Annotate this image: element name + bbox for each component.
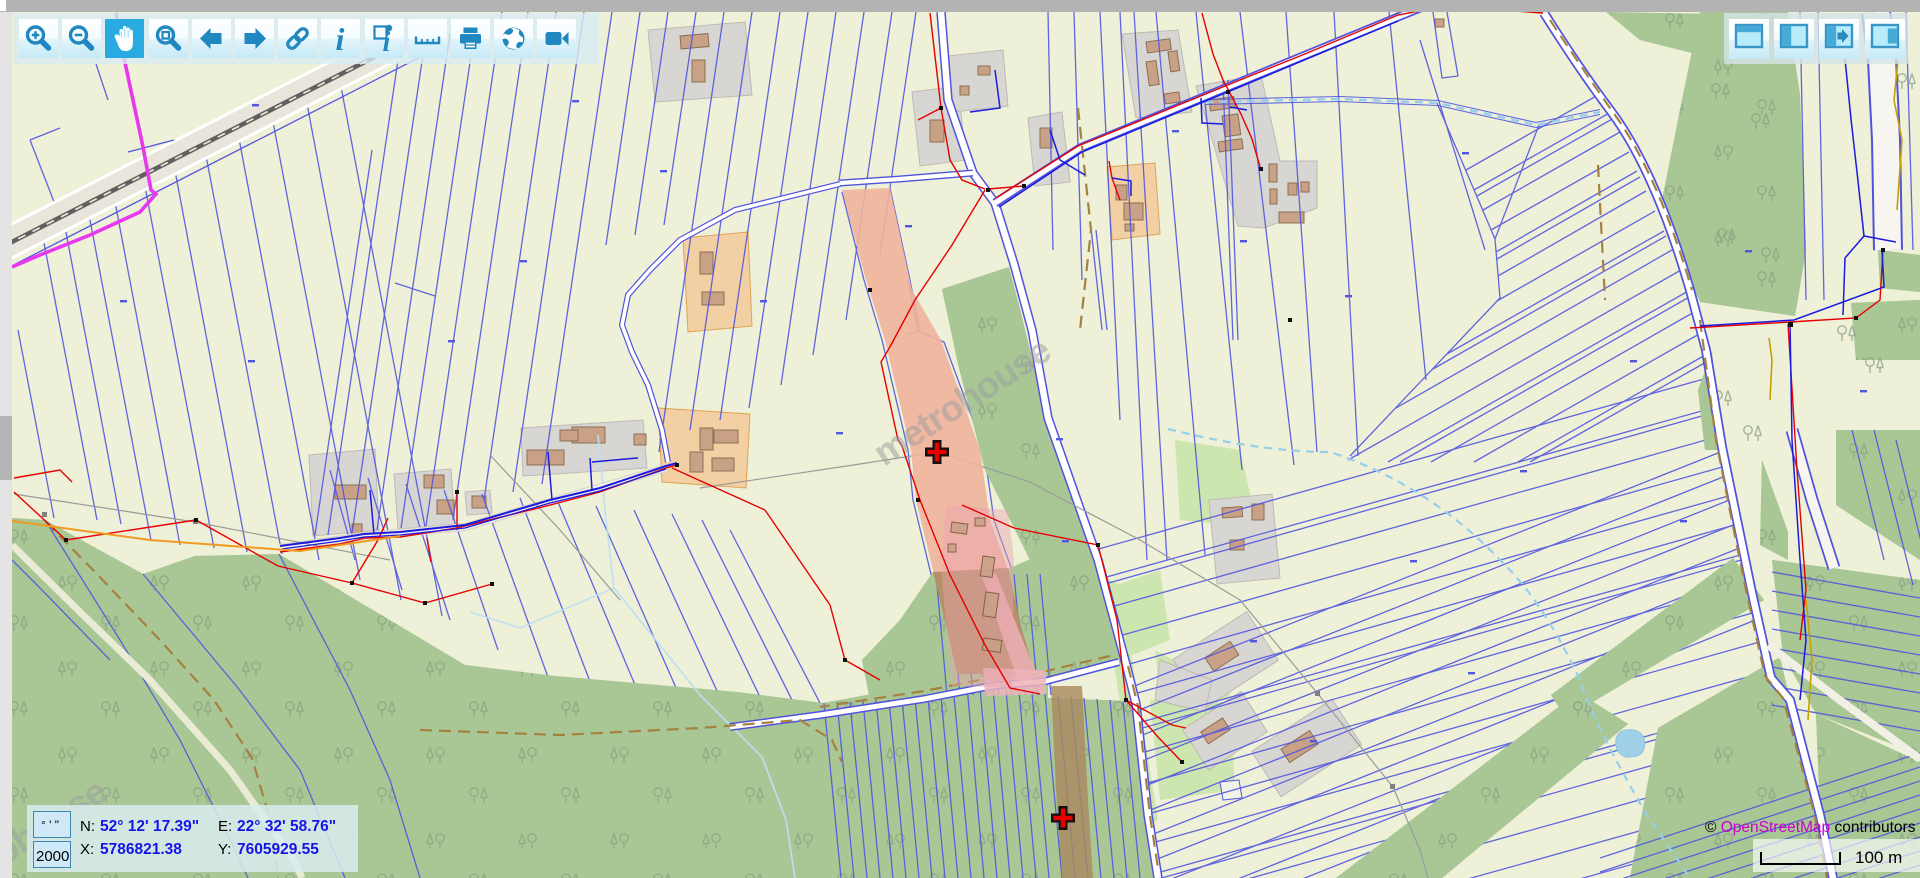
svg-text:22° 32' 58.76": 22° 32' 58.76" [237,818,336,835]
svg-text:i: i [383,27,391,58]
svg-text:5786821.38: 5786821.38 [100,841,182,858]
svg-text:N:: N: [80,818,95,835]
svg-text:° ' ": ° ' " [41,818,59,832]
svg-text:Y:: Y: [218,841,231,858]
svg-text:© OpenStreetMap contributors: © OpenStreetMap contributors [1705,819,1916,836]
svg-text:100 m: 100 m [1855,848,1902,867]
svg-text:i: i [336,21,345,57]
svg-text:52° 12' 17.39": 52° 12' 17.39" [100,818,199,835]
svg-text:E:: E: [218,818,232,835]
svg-text:7605929.55: 7605929.55 [237,841,319,858]
svg-text:X:: X: [80,841,94,858]
svg-text:2000: 2000 [36,848,69,865]
